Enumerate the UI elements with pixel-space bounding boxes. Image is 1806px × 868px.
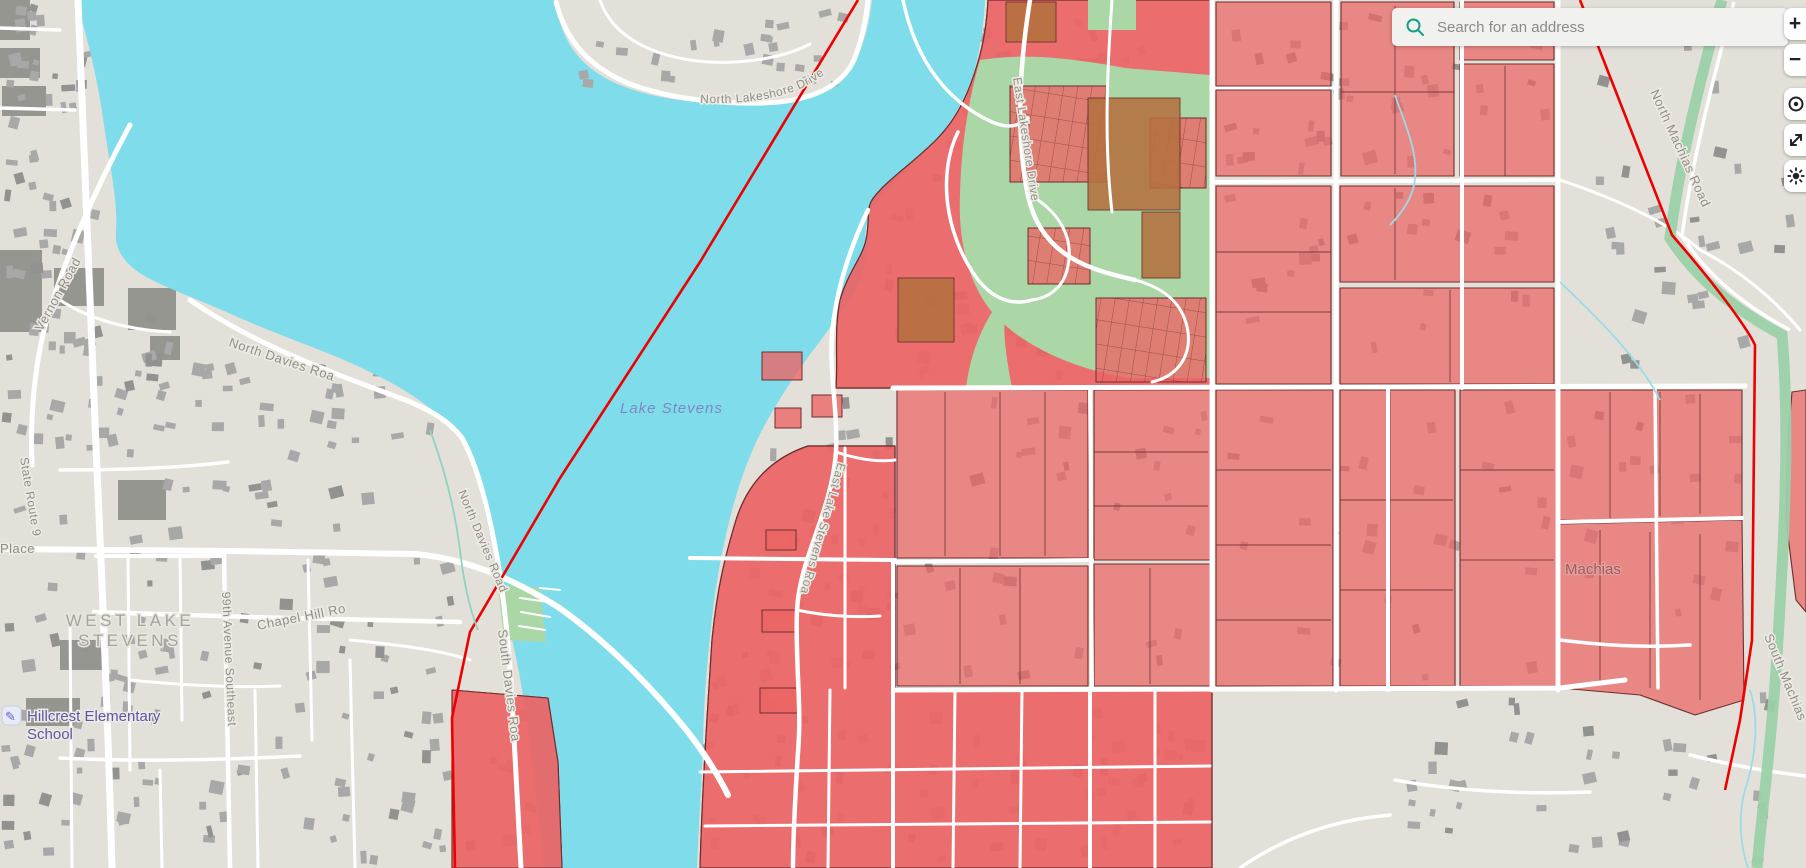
zoom-out-button[interactable]: −	[1784, 44, 1806, 76]
zoom-out-icon: −	[1784, 48, 1806, 72]
label-school-line2: School	[27, 726, 73, 743]
address-search-bar[interactable]	[1392, 8, 1788, 46]
zoom-in-button[interactable]: +	[1784, 8, 1806, 40]
settings-button[interactable]	[1784, 160, 1806, 192]
locate-icon	[1787, 95, 1805, 113]
locate-button[interactable]	[1784, 88, 1806, 120]
map-controls: + −	[1784, 8, 1806, 196]
fullscreen-icon	[1787, 131, 1805, 149]
label-place: Place	[0, 541, 35, 556]
label-lake-stevens: Lake Stevens	[620, 400, 723, 417]
map-app: Vernon Road North Davies Road State Rout…	[0, 0, 1806, 868]
search-input[interactable]	[1435, 18, 1788, 37]
label-stevens: STEVENS	[78, 631, 182, 650]
label-school-line1: Hillcrest Elementary	[27, 708, 161, 725]
search-icon	[1405, 17, 1425, 37]
fullscreen-button[interactable]	[1784, 124, 1806, 156]
settings-icon	[1787, 167, 1805, 185]
zoom-in-icon: +	[1784, 12, 1806, 36]
school-icon-glyph: ✎	[5, 709, 16, 724]
label-machias: Machias	[1565, 561, 1621, 578]
map-canvas[interactable]: Vernon Road North Davies Road State Rout…	[0, 0, 1806, 868]
label-west-lake: WEST LAKE	[66, 611, 195, 630]
